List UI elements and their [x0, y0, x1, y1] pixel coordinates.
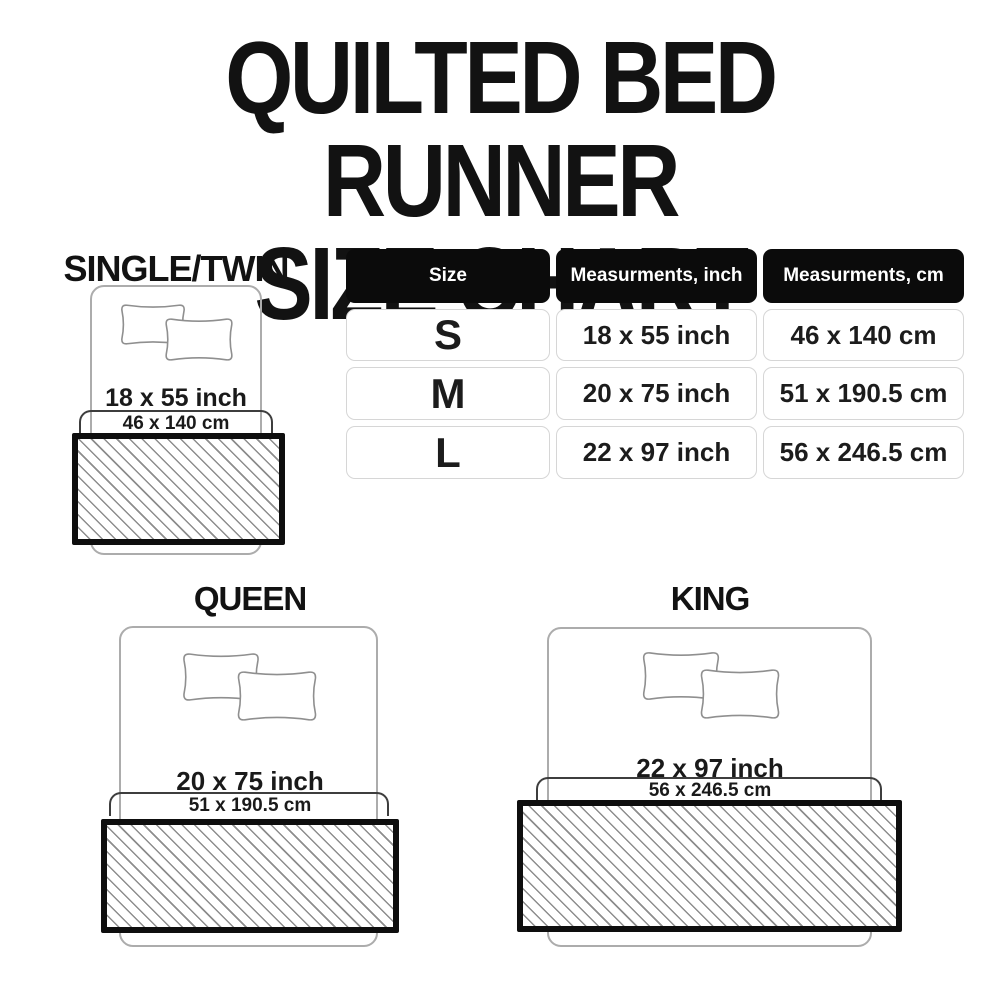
runner-swatch: [517, 800, 902, 932]
runner-swatch: [101, 819, 399, 933]
dimension-cm-label: 46 x 140 cm: [36, 413, 316, 435]
size-table: Size Measurments, inch Measurments, cm S…: [346, 249, 964, 479]
cell-row2-size: M: [346, 367, 550, 420]
cell-row2-inch: 20 x 75 inch: [556, 367, 757, 420]
size-chart-page: QUILTED BED RUNNERSIZE CHART SINGLE/TWIN…: [0, 0, 1000, 1000]
cell-row1-size: S: [346, 309, 550, 361]
diagram-label-king: KING: [510, 580, 910, 618]
column-header-size: Size: [346, 249, 550, 303]
page-title-line1: QUILTED BED RUNNER: [225, 20, 775, 238]
diagram-queen: QUEEN 20 x 75 inch 51 x 190.5 cm: [50, 580, 450, 952]
cell-row3-size: L: [346, 426, 550, 479]
cell-row3-cm: 56 x 246.5 cm: [763, 426, 964, 479]
cell-row2-cm: 51 x 190.5 cm: [763, 367, 964, 420]
dimension-cm-label: 51 x 190.5 cm: [50, 795, 450, 817]
column-header-inch: Measurments, inch: [556, 249, 757, 303]
diagram-single-twin: SINGLE/TWIN 18 x 55 inch 46 x 140 cm: [36, 248, 316, 563]
pillow-front-icon: [231, 664, 323, 728]
pillow-front-icon: [693, 662, 787, 726]
column-header-cm: Measurments, cm: [763, 249, 964, 303]
pillow-front-icon: [160, 312, 238, 367]
cell-row1-inch: 18 x 55 inch: [556, 309, 757, 361]
dimension-inch-label: 18 x 55 inch: [36, 384, 316, 413]
diagram-label-single-twin: SINGLE/TWIN: [36, 248, 316, 290]
diagram-label-queen: QUEEN: [50, 580, 450, 618]
runner-swatch: [72, 433, 285, 545]
diagram-king: KING 22 x 97 inch 56 x 246.5 cm: [510, 580, 910, 952]
cell-row1-cm: 46 x 140 cm: [763, 309, 964, 361]
dimension-cm-label: 56 x 246.5 cm: [510, 780, 910, 802]
cell-row3-inch: 22 x 97 inch: [556, 426, 757, 479]
